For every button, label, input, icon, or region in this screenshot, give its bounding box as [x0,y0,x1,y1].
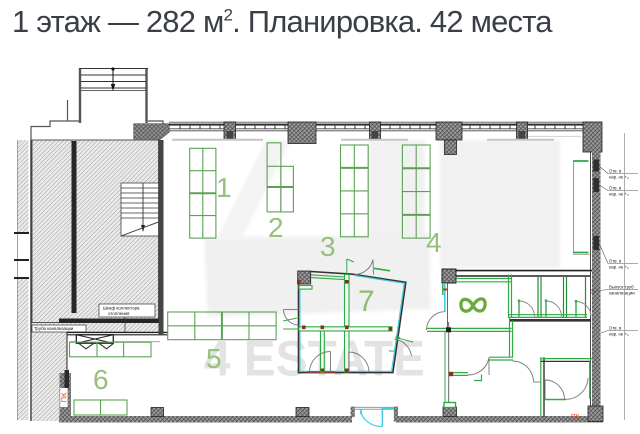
svg-text:Шкаф коллектора: Шкаф коллектора [103,306,140,311]
svg-text:нар. не +₀: нар. не +₀ [609,174,629,179]
svg-text:нар. не +₀: нар. не +₀ [609,264,629,269]
svg-text:Труба канализации: Труба канализации [34,326,74,331]
svg-text:3: 3 [320,231,336,262]
svg-text:Выпуск труб: Выпуск труб [609,285,634,290]
svg-text:канализации: канализации [609,290,635,295]
svg-text:нар. не +₀: нар. не +₀ [609,331,629,336]
svg-text:Отв. в: Отв. в [609,326,622,331]
svg-text:2: 2 [268,212,284,243]
svg-text:1: 1 [216,172,232,203]
svg-text:ПК: ПК [60,392,69,402]
svg-text:Отв. в: Отв. в [609,259,622,264]
svg-text:нар. не +₀: нар. не +₀ [609,191,629,196]
svg-text:4: 4 [426,227,442,258]
svg-text:7: 7 [358,285,375,318]
svg-text:5: 5 [206,343,222,374]
svg-text:ПК: ПК [571,414,580,421]
svg-text:Отв. в: Отв. в [609,169,622,174]
svg-text:Отв. в: Отв. в [609,186,622,191]
svg-text:отопления: отопления [108,311,130,316]
svg-text:6: 6 [93,364,109,395]
